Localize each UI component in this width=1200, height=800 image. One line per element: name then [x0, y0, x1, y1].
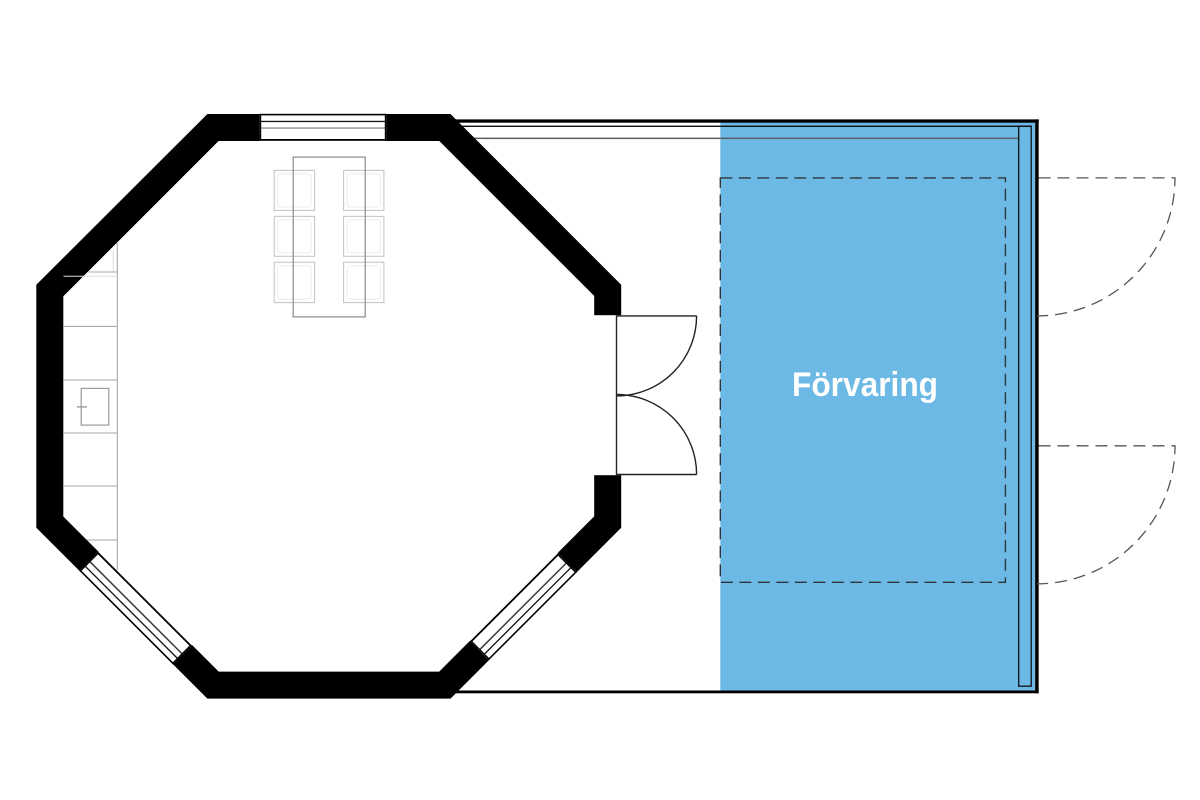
svg-text:Förvaring: Förvaring [792, 366, 938, 404]
